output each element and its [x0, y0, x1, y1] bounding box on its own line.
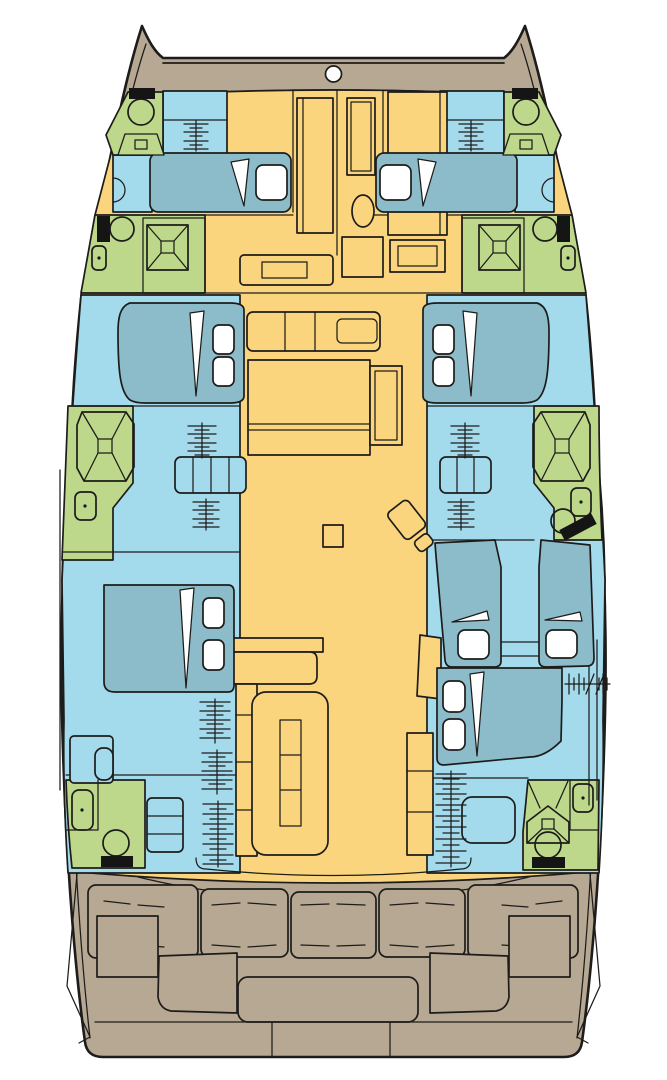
floor-plan-page	[0, 0, 667, 1080]
mast-post	[323, 525, 343, 547]
port-aft-steps	[147, 798, 183, 852]
cockpit-bench-cushion-left	[201, 889, 288, 957]
port-mid-pillow-2	[213, 357, 234, 386]
port-forward-cabin-floor	[113, 155, 152, 212]
port-forward-sink-drain	[97, 256, 100, 259]
port-bow-hatch	[129, 88, 155, 99]
port-forward-seat	[240, 255, 333, 285]
starboard-mid-dresser	[440, 457, 491, 493]
saloon-sofa-back	[230, 638, 323, 652]
catamaran-floor-plan	[0, 0, 667, 1080]
starboard-aft-sink-drain	[581, 796, 584, 799]
port-access-wedge	[158, 953, 237, 1013]
port-aft-pillow-2	[203, 640, 224, 670]
port-forward-toilet-tank	[97, 216, 110, 242]
starboard-saloon-bench	[407, 733, 433, 855]
port-helm-seat	[97, 916, 158, 977]
dining-table	[252, 692, 328, 855]
starboard-helm-seat	[509, 916, 570, 977]
port-aft-pillow-1	[203, 598, 224, 628]
galley-island	[248, 360, 370, 455]
starboard-aft-head	[523, 780, 599, 870]
starboard-forward-pillow	[380, 165, 411, 200]
cockpit-bench-cushion-right	[379, 889, 465, 957]
starboard-bow-hatch	[512, 88, 538, 99]
starboard-access-wedge	[430, 953, 509, 1013]
cockpit-table	[238, 977, 418, 1022]
cockpit-bench-cushion-center	[291, 892, 376, 958]
port-forepeak-door-fold	[118, 134, 164, 155]
saloon-sofa-seat	[232, 652, 317, 684]
starboard-aft-pillow-2	[443, 719, 465, 750]
starboard-mid-sink-drain	[579, 500, 582, 503]
port-aft-toilet-seat	[101, 856, 133, 867]
starboard-forward-sink-drain	[566, 256, 569, 259]
starboard-mid-pillow-1	[433, 325, 454, 354]
port-forward-pillow	[256, 165, 287, 200]
starboard-aft-pillow-1	[443, 681, 465, 712]
starboard-bunk2-pillow	[546, 630, 577, 658]
port-mid-sink-drain	[83, 504, 86, 507]
starboard-forward-toilet-tank	[557, 216, 570, 242]
starboard-bunk1-pillow	[458, 630, 489, 659]
starboard-mid-pillow-2	[433, 357, 454, 386]
starboard-aft-toilet-seat	[532, 857, 565, 868]
galley-counter	[247, 312, 380, 351]
port-mid-pillow-1	[213, 325, 234, 354]
starboard-forepeak-door-fold	[503, 134, 549, 155]
starboard-forward-cabin-floor	[515, 155, 554, 212]
starboard-aft-steps	[462, 797, 515, 843]
port-aft-head	[66, 780, 145, 868]
port-aft-vanity-stool	[95, 748, 113, 780]
port-aft-sink-drain	[80, 808, 83, 811]
forestay-ring	[326, 66, 342, 82]
